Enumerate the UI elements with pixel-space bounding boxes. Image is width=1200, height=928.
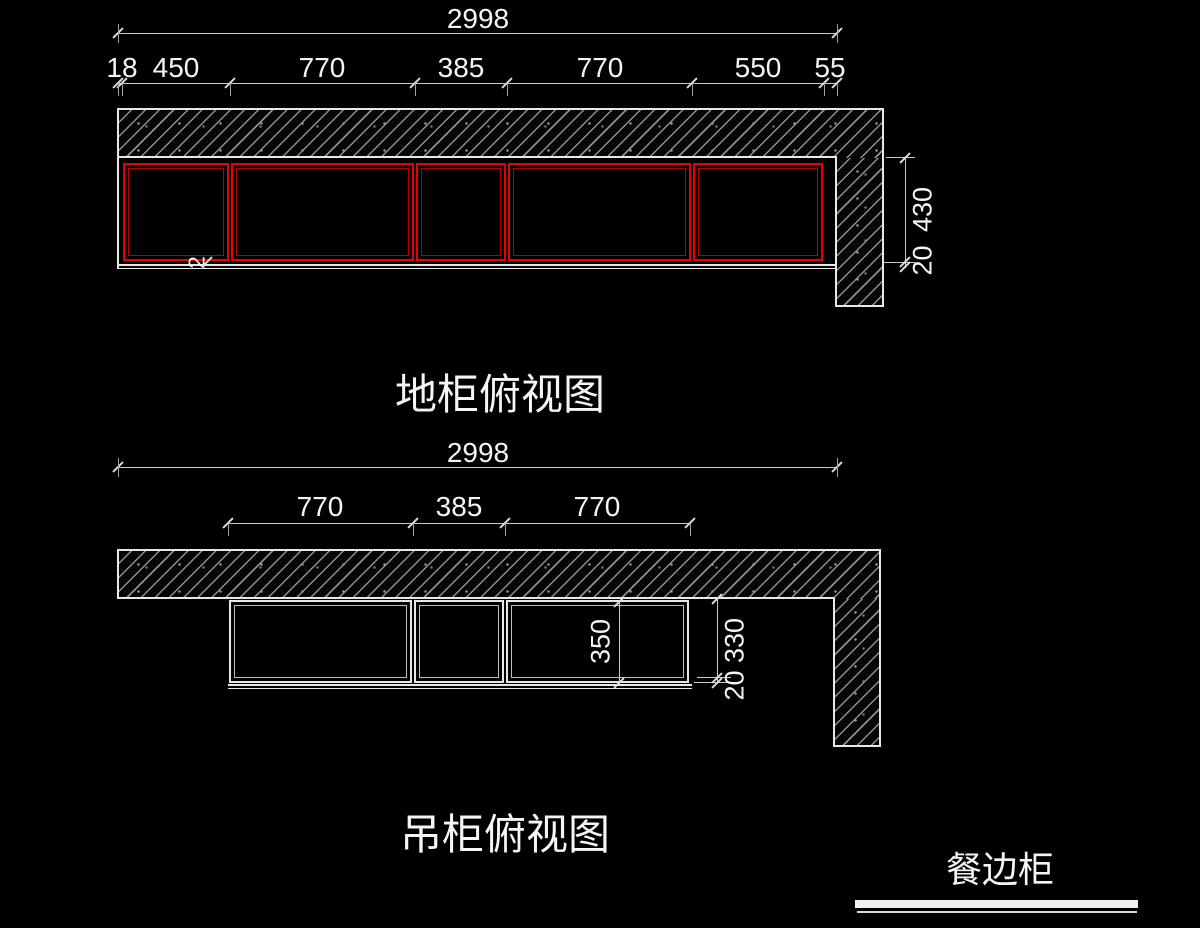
dim-line [619,601,620,684]
dim-line [717,599,718,684]
dim-line [228,523,690,524]
extension-line [692,83,693,96]
cabinet-outline [228,688,692,689]
extension-line [118,458,119,477]
extension-line [228,523,229,536]
cad-canvas: 2998 18 450 770 385 770 550 55 2 430 [0,0,1200,928]
dim-label: 20 [910,231,937,291]
cabinet-outline [117,264,837,266]
dim-line [905,158,906,268]
wall-outline [117,549,119,599]
drawing2-title: 吊柜俯视图 [335,812,675,858]
extension-line [415,83,416,96]
dim-label: 770 [540,54,660,82]
wall-outline [835,745,881,747]
extension-line [837,458,838,477]
dim-label: 2998 [408,439,548,467]
dim-label: 2998 [408,5,548,33]
dim-label: 55 [800,54,860,82]
wall-hatch-corner-column[interactable] [837,158,884,305]
extension-line [122,83,123,96]
drawing1-title: 地柜俯视图 [330,372,670,418]
cabinet-outline [117,268,837,269]
wall-cabinet-compartment[interactable] [229,600,412,683]
wall-outline [118,108,884,110]
wall-outline [879,549,881,747]
wall-hatch-top[interactable] [118,110,884,158]
base-cabinet-compartment[interactable] [693,163,823,261]
dim-label: 20 [722,656,749,716]
base-cabinet-compartment[interactable] [508,163,691,261]
extension-line [505,523,506,536]
wall-outline [118,156,837,158]
legend-underline-thin [857,911,1137,913]
dim-label: 385 [401,54,521,82]
wall-outline [833,597,835,747]
wall-outline [837,305,884,307]
cabinet-outline [117,158,119,268]
dim-label: 770 [260,493,380,521]
base-cabinet-compartment[interactable] [231,163,414,261]
wall-hatch-corner-column[interactable] [835,599,881,745]
wall-outline [882,108,884,307]
extension-line [230,83,231,96]
wall-outline [117,108,119,158]
base-cabinet-compartment[interactable] [123,163,229,261]
cabinet-outline [228,684,692,686]
wall-hatch-top[interactable] [118,551,881,599]
dim-label: 385 [399,493,519,521]
extension-line [507,83,508,96]
extension-line [118,83,119,96]
extension-line [824,83,825,96]
extension-line [690,523,691,536]
dim-label: 450 [116,54,236,82]
dim-label: 350 [588,582,615,702]
extension-line [118,24,119,43]
dim-label: 770 [537,493,657,521]
extension-line [837,24,838,43]
wall-outline [118,549,881,551]
legend-label: 餐边柜 [900,850,1100,890]
base-cabinet-compartment[interactable] [416,163,506,261]
dim-label: 770 [262,54,382,82]
wall-outline [835,156,837,307]
extension-line [413,523,414,536]
legend-underline-thick [855,900,1138,908]
extension-line [837,83,838,96]
wall-cabinet-compartment[interactable] [414,600,504,683]
